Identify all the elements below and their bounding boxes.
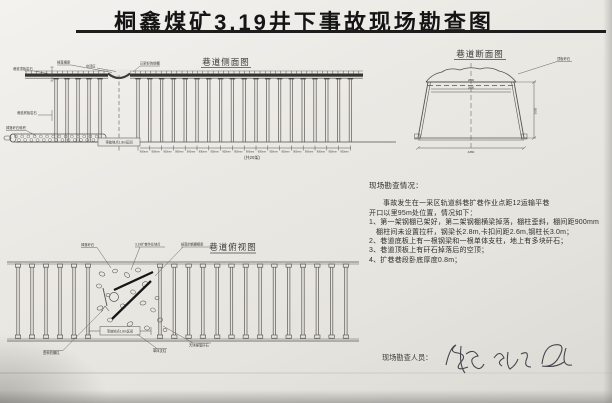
plan-view-diagram: 巷道俯视图 事故地点1.8m区间 掉落矸石 3.: [5, 240, 367, 368]
shed-posts-plan: [15, 264, 348, 338]
worksite-label: 3.19扩巷作业地点: [135, 242, 161, 247]
dim-bottom-width: 4200: [468, 150, 475, 154]
prop-label: 单体支柱: [153, 348, 167, 353]
bay-dimension-label: 900mm: [340, 151, 348, 154]
notes-line: 4、扩巷巷段卧底厚度0.8m；: [369, 256, 611, 265]
notes-line: 1、第一架钢棚已架好，第二架钢棚横梁掉落，棚柱歪斜，棚间距900mm: [369, 218, 611, 227]
notes-line: 3、巷道顶板上有矸石掉落后的空顶；: [369, 246, 611, 255]
bay-dimension-label: 900mm: [317, 151, 325, 154]
dim-leg-height: 3000: [534, 107, 538, 114]
side-view-title: 巷道侧面图: [202, 57, 250, 67]
fallen-beam-label: 掉落横梁: [57, 60, 71, 65]
bay-dimension-label: 900mm: [211, 151, 219, 154]
bay-dimension-label: 900mm: [305, 151, 313, 154]
plan-view-title: 巷道俯视图: [209, 242, 257, 252]
fallen-rock-label: 掉落矸石: [81, 242, 95, 247]
scanned-survey-sheet: 桐鑫煤矿3.19井下事故现场勘查图 巷道侧面图 900mm900mm900mm9…: [0, 0, 612, 403]
roadway-rails: [7, 262, 359, 341]
notes-line: 2、巷道底板上有一根钢梁和一根单体支柱，地上有多块矸石；: [369, 237, 611, 246]
cross-section-drawing: [415, 63, 537, 152]
large-debris-label: 大块掉落矸石: [189, 343, 209, 348]
fallen-steel-beam-1: [112, 281, 151, 319]
cross-section-title: 巷道断面图: [456, 49, 504, 59]
side-view-diagram: 巷道侧面图 900mm900mm900mm900mm900mm900mm900m…: [4, 55, 404, 177]
signature-handwriting: [446, 345, 572, 373]
notes-line: 事故发生在一采区轨道斜巷扩巷作业点距12运输平巷: [369, 199, 611, 208]
roof-beam: [25, 74, 363, 77]
bay-dimension-label: 900mm: [234, 151, 242, 154]
accident-span-label: 事故地点1.8m区间: [105, 140, 132, 145]
roof-rock-callout: 顶板矸石: [557, 56, 571, 61]
plan-accident-span-label: 事故地点1.8m区间: [107, 328, 133, 333]
bay-dimension-label: 900mm: [140, 151, 148, 154]
notes-line: 棚柱间未设置拉杆，钢梁长2.8m,卡扣间距2.6m,钢柱长3.0m；: [369, 228, 611, 237]
bay-dimension-label: 900mm: [270, 151, 278, 154]
steel-posts: [53, 79, 353, 142]
bay-dimension-label: 900mm: [329, 151, 337, 154]
signature-row: 现场勘查人员：: [380, 335, 610, 385]
survey-notes: 现场勘查情况： 事故发生在一采区轨道斜巷扩巷作业点距12运输平巷 开口以里95m…: [369, 181, 611, 265]
tilted-post-label: 歪斜的棚柱: [43, 350, 60, 355]
roof-rock-label: 巷道顶板岩石: [13, 66, 33, 71]
roller-circle: [110, 293, 119, 302]
notes-line: 开口以里95m处位置，情况如下：: [369, 209, 611, 218]
bay-dimension-label: 900mm: [222, 151, 230, 154]
fallen-beam-plan-label: 掉落的钢棚横梁: [181, 242, 204, 247]
right-leg: [514, 82, 524, 138]
debris-label: 掉落矸石堆积: [6, 125, 26, 130]
surveyors-label: 现场勘查人员：: [382, 353, 432, 362]
bay-dimension-label: 900mm: [187, 151, 195, 154]
shed-label: 已架好的钢棚: [140, 61, 160, 66]
bay-dimension-chain: 900mm900mm900mm900mm900mm900mm900mm900mm…: [138, 146, 351, 154]
bay-dimension-label: 900mm: [246, 151, 254, 154]
bay-dimension-label: 900mm: [163, 151, 171, 154]
dim-clamp-spacing: 2600: [468, 85, 475, 89]
bay-dimension-label: 900mm: [258, 151, 266, 154]
cavity-label: 空顶区: [86, 64, 96, 69]
floor-rock-label: 巷道底板岩石: [17, 110, 37, 115]
tilted-post: [103, 288, 107, 306]
bay-dimension-label: 900mm: [293, 151, 301, 154]
bay-dimension-label: 900mm: [152, 151, 160, 154]
fallen-steel-beam-2: [114, 272, 153, 290]
notes-heading: 现场勘查情况：: [369, 181, 611, 190]
bay-dimension-label: 900mm: [281, 151, 289, 154]
left-leg: [418, 82, 428, 138]
title-underline: [76, 30, 606, 33]
cross-section-diagram: 巷道断面图 2800 2600 30: [402, 45, 612, 187]
bay-dimension-label: 900mm: [175, 151, 183, 154]
bay-dimension-label: 900mm: [199, 151, 207, 154]
total-sheds-label: (共20架): [244, 154, 260, 161]
accident-zone: [96, 268, 167, 332]
dim-beam-length: 2800: [468, 78, 475, 82]
